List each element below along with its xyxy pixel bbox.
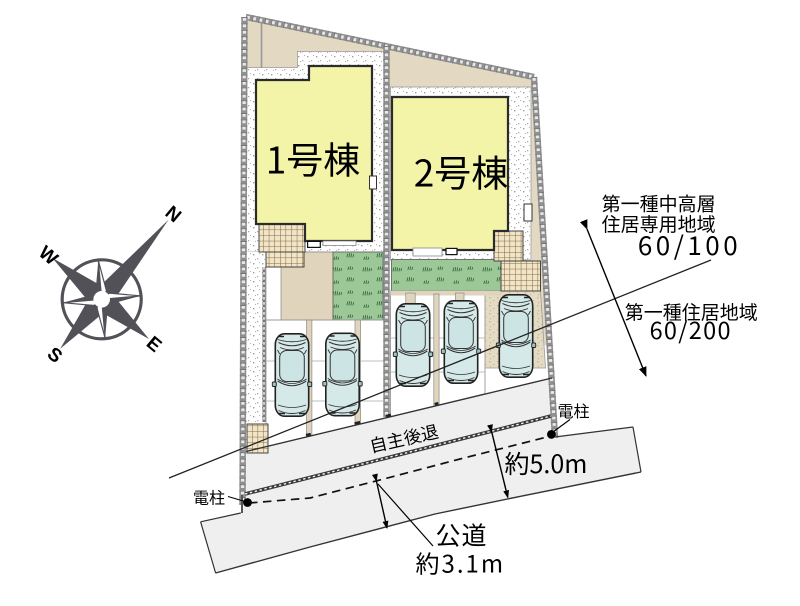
- svg-text:1号棟: 1号棟: [266, 131, 361, 185]
- svg-text:電柱: 電柱: [193, 485, 225, 509]
- svg-text:2号棟: 2号棟: [414, 144, 509, 198]
- svg-text:約3.1m: 約3.1m: [416, 545, 506, 580]
- svg-text:電柱: 電柱: [558, 398, 590, 422]
- svg-text:60/100: 60/100: [638, 226, 741, 263]
- svg-text:約5.0m: 約5.0m: [505, 445, 588, 481]
- svg-text:60/200: 60/200: [650, 312, 732, 346]
